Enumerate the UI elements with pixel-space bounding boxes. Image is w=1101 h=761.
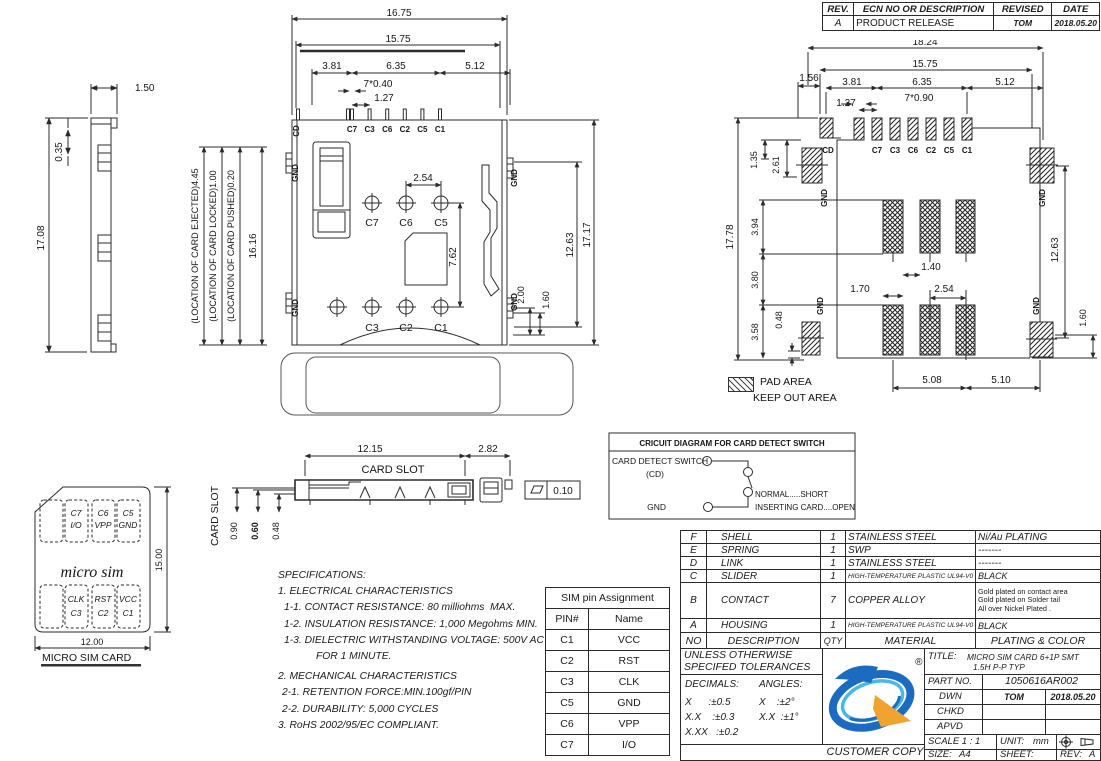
svg-text:C2: C2 (98, 608, 109, 618)
label-card-ejected: (LOCATION OF CARD EJECTED)4.45 (190, 168, 200, 323)
gnd-label: GND (291, 299, 300, 317)
label-card-pushed: (LOCATION OF CARD PUSHED)0.20 (226, 170, 236, 322)
table-row: C5GND (546, 693, 670, 714)
dim-3-81: 3.81 (842, 77, 862, 88)
contact-label: C7 (365, 217, 379, 229)
rev-value: A (823, 16, 854, 31)
tolerance-values: DECIMALS: ANGLES: X :±0.5 X :±2° X.X :±0… (680, 674, 823, 745)
ecn-header: ECN NO OR DESCRIPTION (854, 3, 994, 16)
dim-7x040-span: 5.12 (465, 61, 485, 72)
gnd-label: GND (291, 164, 300, 182)
title-cell: TITLE: MICRO SIM CARD 6+1P SMT 1.5H P-P … (924, 648, 1101, 675)
dim-1-27: 1.27 (836, 98, 856, 109)
customer-copy-cell: CUSTOMER COPY (680, 744, 925, 761)
parts-list-table: FSHELL1STAINLESS STEELNi/Au PLATING ESPR… (680, 530, 1101, 649)
chkd-value-cell (982, 704, 1046, 720)
pad-label: C2 (926, 146, 937, 155)
spec-line: 2-1. RETENTION FORCE:MIN.100gf/PIN (278, 685, 553, 701)
table-row: C2RST (546, 651, 670, 672)
table-row: C3CLK (546, 672, 670, 693)
spec-line: FOR 1 MINUTE. (278, 649, 553, 665)
svg-text:C1: C1 (123, 608, 134, 618)
dim-3-81: 3.81 (322, 61, 342, 72)
date-header: DATE (1052, 3, 1100, 16)
sim-pad-labels: C7 I/O C6 VPP C5 GND CLK C3 RST C2 VCC C… (68, 508, 138, 618)
card-slot-view: 12.15 2.82 CARD SLOT 0.10 CARD SLOT 0.90… (210, 428, 610, 556)
gnd-label: GND (1032, 297, 1041, 315)
title-block: UNLESS OTHERWISESPECIFED TOLERANCES DECI… (680, 648, 1101, 761)
pad-label-cd: CD (822, 146, 834, 155)
dim-12-15: 12.15 (357, 444, 382, 455)
side-view-body (91, 118, 117, 352)
dim-12-63: 12.63 (565, 232, 576, 257)
engineering-drawing-sheet: REV. ECN NO OR DESCRIPTION REVISED DATE … (0, 0, 1101, 761)
svg-text:CLK: CLK (68, 594, 85, 604)
circuit-cd-label: (CD) (646, 469, 664, 479)
decimals-label: DECIMALS: (685, 679, 739, 690)
pin-col-header: PIN# (546, 609, 589, 630)
spec-line: 1-1. CONTACT RESISTANCE: 80 milliohms MA… (278, 600, 553, 616)
customer-copy-label: CUSTOMER COPY (824, 746, 926, 758)
dim-2-54: 2.54 (413, 173, 433, 184)
dim-6-35: 6.35 (912, 77, 932, 88)
pad-label: C6 (908, 146, 919, 155)
apvd-date-cell (1045, 719, 1101, 735)
dim-15-75: 15.75 (912, 59, 937, 70)
table-row: C1VCC (546, 630, 670, 651)
table-row: ESPRING1SWP------- (681, 544, 1101, 557)
company-logo: ® (823, 649, 924, 744)
dim-15-00: 15.00 (154, 549, 164, 572)
unit-cell: UNIT: mm (996, 734, 1057, 750)
tol-xxx: X.XX :±0.2 (685, 727, 738, 738)
gnd-label: GND (510, 293, 519, 311)
revised-header: REVISED (993, 3, 1051, 16)
rev-cell: REV: A (1056, 749, 1101, 761)
pin-label: C3 (364, 125, 375, 134)
pin-table-title: SIM pin Assignment (546, 588, 670, 609)
circuit-switch-label: CARD DETECT SWITCH (612, 456, 708, 466)
pad-label: C1 (962, 146, 973, 155)
dim-1-60: 1.60 (541, 291, 551, 309)
dim-5-08: 5.08 (922, 375, 942, 386)
svg-text:VPP: VPP (94, 520, 111, 530)
card-slot-label: CARD SLOT (362, 464, 425, 476)
svg-text:RST: RST (95, 594, 113, 604)
spec-line: 1-3. DIELECTRIC WITHSTANDING VOLTAGE: 50… (278, 633, 553, 649)
table-row: C7I/O (546, 735, 670, 756)
circuit-normal-label: NORMAL.....SHORT (755, 490, 828, 499)
spec-line: SPECIFICATIONS: (278, 568, 553, 584)
sim-brand-text: micro sim (61, 564, 124, 581)
tol-ang-x: X :±2° (759, 697, 795, 708)
dim-1-27: 1.27 (374, 93, 394, 104)
pin-label-cd: CD (292, 125, 301, 137)
dim-1-70: 1.70 (850, 284, 870, 295)
spec-line: 1. ELECTRICAL CHARACTERISTICS (278, 584, 553, 600)
circuit-title: CRICUIT DIAGRAM FOR CARD DETECT SWITCH (639, 439, 825, 448)
tol-xx: X.X :±0.3 (685, 712, 734, 723)
dim-18-24: 18.24 (912, 40, 937, 48)
spec-line: 2-2. DURABILITY: 5,000 CYCLES (278, 702, 553, 718)
pad-label: C3 (890, 146, 901, 155)
dim-12-63: 12.63 (1050, 237, 1061, 262)
table-row: C6VPP (546, 714, 670, 735)
spec-line: 1-2. INSULATION RESISTANCE: 1,000 Megohm… (278, 617, 553, 633)
name-col-header: Name (589, 609, 670, 630)
angles-label: ANGLES: (759, 679, 802, 690)
contact-label: C2 (399, 322, 413, 334)
label-card-locked: (LOCATION OF CARD LOCKED)1.00 (208, 170, 218, 321)
keep-out-area-label: KEEP OUT AREA (753, 392, 837, 404)
pcb-layout-view: 18.24 15.75 3.81 6.35 5.12 7*0.90 1.27 1… (695, 40, 1101, 398)
specifications-block: SPECIFICATIONS: 1. ELECTRICAL CHARACTERI… (278, 568, 553, 734)
tol-ang-xx: X.X :±1° (759, 712, 799, 723)
svg-text:C5: C5 (123, 508, 134, 518)
dim-0-60: 0.60 (250, 522, 260, 540)
sim-card-caption: MICRO SIM CARD (42, 652, 132, 664)
registered-mark: ® (915, 657, 923, 668)
partno-label-cell: PART NO. (924, 674, 983, 690)
svg-text:C6: C6 (98, 508, 109, 518)
dim-1-40: 1.40 (921, 262, 941, 273)
front-view-body (281, 109, 573, 415)
contact-label: C3 (365, 322, 379, 334)
dim-3-94: 3.94 (750, 218, 760, 236)
svg-text:GND: GND (119, 520, 138, 530)
pad-area-label: PAD AREA (760, 376, 812, 388)
dwn-value-cell: TOM (982, 689, 1046, 705)
card-slot-profile (295, 478, 580, 505)
dim-1-35: 1.35 (749, 151, 759, 169)
spec-line: 2. MECHANICAL CHARACTERISTICS (278, 669, 553, 685)
dim-1-60: 1.60 (1078, 309, 1088, 327)
scale-cell: SCALE 1 : 1 (924, 734, 997, 750)
pin-label: C2 (400, 125, 411, 134)
flatness-value: 0.10 (553, 486, 573, 497)
dim-0-48: 0.48 (774, 311, 784, 329)
card-location-dims: (LOCATION OF CARD EJECTED)4.45 (LOCATION… (185, 95, 268, 390)
logo-cell: ® (822, 648, 925, 745)
size-cell: SIZE: A4 (924, 749, 997, 761)
card-detect-circuit: CRICUIT DIAGRAM FOR CARD DETECT SWITCH C… (608, 430, 858, 522)
pad-label: C5 (944, 146, 955, 155)
circuit-inserting-label: INSERTING CARD....OPEN (755, 503, 855, 512)
pad-label: C7 (872, 146, 883, 155)
dim-16-75: 16.75 (386, 8, 411, 19)
dim-pin-width: 7*0.40 (364, 79, 393, 90)
projection-cell (1056, 734, 1101, 750)
dim-3-80: 3.80 (750, 271, 760, 289)
partno-value-cell: 1050616AR002 (982, 674, 1101, 690)
dwn-date-cell: 2018.05.20 (1045, 689, 1101, 705)
revised-value: TOM (993, 16, 1051, 31)
contact-label: C1 (434, 322, 448, 334)
dim-6-35: 6.35 (386, 61, 406, 72)
dim-15-75: 15.75 (385, 34, 410, 45)
date-value: 2018.05.20 (1052, 16, 1100, 31)
svg-text:I/O: I/O (70, 520, 82, 530)
revision-table: REV. ECN NO OR DESCRIPTION REVISED DATE … (822, 2, 1100, 31)
gnd-label: GND (816, 297, 825, 315)
dim-17-78: 17.78 (725, 224, 736, 249)
spec-line: 3. RoHS 2002/95/EC COMPLIANT. (278, 718, 553, 734)
dim-5-12: 5.12 (995, 77, 1015, 88)
front-view: 16.75 15.75 3.81 6.35 5.12 7*0.40 1.27 (268, 5, 608, 417)
chkd-label-cell: CHKD (924, 704, 983, 720)
dwn-label-cell: DWN (924, 689, 983, 705)
dim-7-62: 7.62 (448, 247, 459, 267)
dim-1-56: 1.56 (799, 73, 819, 84)
svg-text:C7: C7 (71, 508, 82, 518)
pin-label: C1 (435, 125, 446, 134)
apvd-value-cell (982, 719, 1046, 735)
sheet-cell: SHEET: 1OF1 (996, 749, 1057, 761)
title-label: TITLE: (928, 651, 957, 662)
gnd-label: GND (820, 189, 829, 207)
apvd-label-cell: APVD (924, 719, 983, 735)
dim-17-17: 17.17 (582, 222, 593, 247)
sim-pin-table: SIM pin Assignment PIN# Name C1VCC C2RST… (545, 587, 670, 756)
micro-sim-card-view: C7 I/O C6 VPP C5 GND CLK C3 RST C2 VCC C… (28, 478, 228, 670)
dim-0-90: 0.90 (229, 522, 239, 540)
dim-0-35: 0.35 (54, 142, 65, 162)
table-row: CSLIDER1HIGH-TEMPERATURE PLASTIC UL94-V0… (681, 570, 1101, 583)
tolerance-note: UNLESS OTHERWISESPECIFED TOLERANCES (680, 648, 823, 675)
svg-text:VCC: VCC (119, 594, 138, 604)
svg-text:C3: C3 (71, 608, 82, 618)
dim-3-58: 3.58 (750, 323, 760, 341)
dim-0-48: 0.48 (271, 522, 281, 540)
rev-header: REV. (823, 3, 854, 16)
drawing-title-line1: MICRO SIM CARD 6+1P SMT (967, 652, 1079, 662)
dim-2-61: 2.61 (771, 156, 781, 174)
gnd-label: GND (1038, 189, 1047, 207)
contact-label: C6 (399, 217, 413, 229)
projection-symbol-icon (1057, 735, 1100, 749)
table-row: AHOUSING1HIGH-TEMPERATURE PLASTIC UL94-V… (681, 619, 1101, 633)
drawing-title-line2: 1.5H P-P TYP (973, 662, 1025, 672)
table-row: DLINK1STAINLESS STEEL------- (681, 557, 1101, 570)
contact-label: C5 (434, 217, 448, 229)
gnd-label: GND (510, 169, 519, 187)
tol-x: X :±0.5 (685, 697, 731, 708)
parts-header-row: NODESCRIPTION QTYMATERIAL PLATING & COLO… (681, 633, 1101, 649)
pin-label: C5 (417, 125, 428, 134)
pin-label: C6 (382, 125, 393, 134)
dim-2-82: 2.82 (478, 444, 498, 455)
circuit-gnd-label: GND (647, 502, 666, 512)
pad-area-swatch (728, 377, 754, 392)
table-row: FSHELL1STAINLESS STEELNi/Au PLATING (681, 531, 1101, 544)
dim-pad-width: 7*0.90 (905, 93, 934, 104)
dim-12-00: 12.00 (81, 637, 104, 647)
table-row: BCONTACT7COPPER ALLOYGold plated on cont… (681, 583, 1101, 619)
dim-1-50: 1.50 (135, 83, 155, 94)
dim-17-08: 17.08 (36, 225, 47, 250)
dim-16-16: 16.16 (248, 233, 259, 258)
dim-2-54: 2.54 (934, 284, 954, 295)
dim-5-10: 5.10 (991, 375, 1011, 386)
ecn-value: PRODUCT RELEASE (854, 16, 994, 31)
chkd-date-cell (1045, 704, 1101, 720)
front-view-contacts (327, 193, 451, 317)
pin-label: C7 (347, 125, 358, 134)
